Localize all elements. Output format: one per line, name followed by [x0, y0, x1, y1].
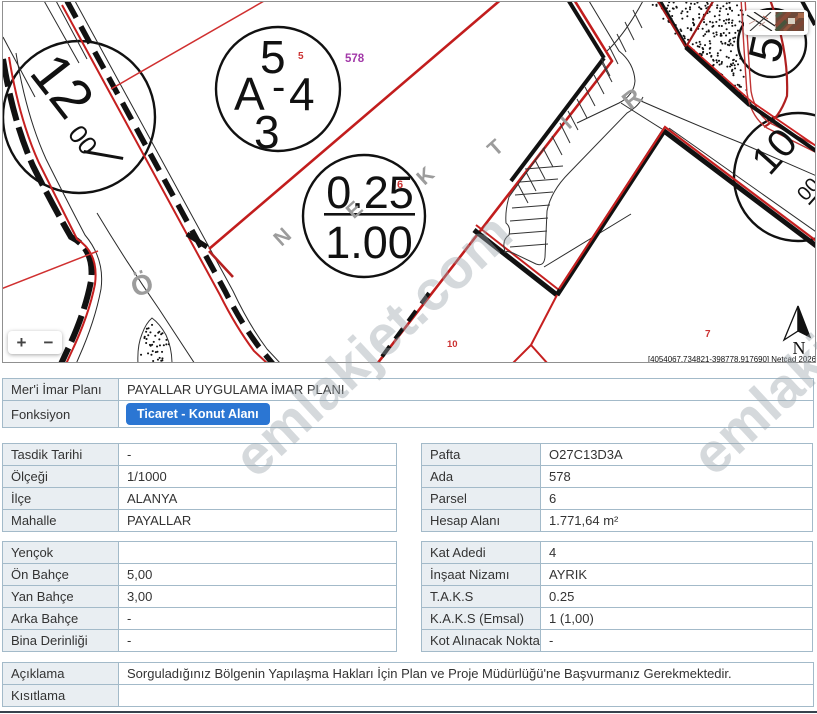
svg-text:Ö: Ö — [127, 267, 157, 303]
svg-text:0.25: 0.25 — [326, 167, 414, 218]
svg-text:3: 3 — [254, 106, 280, 158]
svg-text:7: 7 — [705, 329, 711, 340]
svg-text:N: N — [269, 224, 296, 251]
svg-text:R: R — [617, 83, 647, 115]
svg-text:1.00: 1.00 — [325, 217, 413, 268]
svg-text:5: 5 — [298, 51, 304, 62]
svg-text:-: - — [272, 65, 285, 109]
svg-text:T: T — [483, 135, 508, 161]
svg-text:6: 6 — [397, 179, 403, 191]
svg-text:[4054067.734821-398778.917690]: [4054067.734821-398778.917690] Netcad 20… — [648, 355, 815, 362]
svg-text:578: 578 — [345, 53, 365, 65]
svg-text:4: 4 — [289, 68, 315, 120]
svg-text:10: 10 — [447, 339, 458, 350]
